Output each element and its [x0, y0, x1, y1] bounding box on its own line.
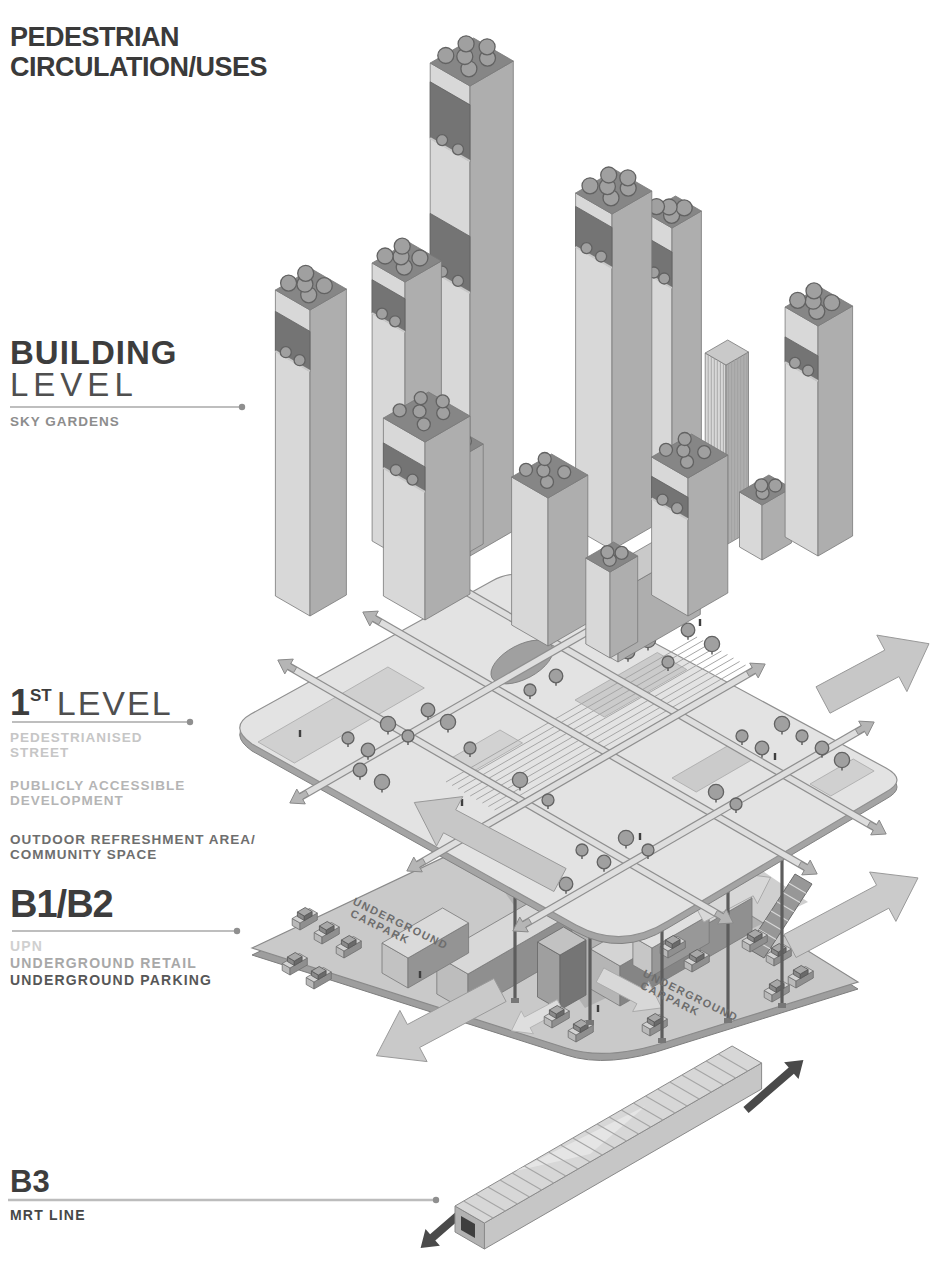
- caption-line: DEVELOPMENT: [10, 793, 185, 808]
- mrt-line-caption: MRT LINE: [10, 1207, 86, 1224]
- sky-gardens-caption: SKY GARDENS: [10, 414, 120, 429]
- pedestrian-circulation-figure: UNDERGROUND CARPARK UNDERGROUND CARPARK …: [0, 0, 936, 1281]
- page-title-line1: PEDESTRIAN: [10, 22, 267, 52]
- publicly-accessible-caption: PUBLICLY ACCESSIBLE DEVELOPMENT: [10, 778, 185, 808]
- b3-heading: B3: [10, 1166, 50, 1198]
- b1-b2-captions: UPN UNDERGROUND RETAIL UNDERGROUND PARKI…: [10, 938, 212, 989]
- axonometric-circulation-diagram: UNDERGROUND CARPARK UNDERGROUND CARPARK: [0, 0, 936, 1281]
- building-level-label: BUILDING LEVEL: [10, 336, 178, 401]
- page-title-line2: CIRCULATION/USES: [10, 52, 267, 82]
- caption-line: OUTDOOR REFRESHMENT AREA/: [10, 832, 256, 847]
- building-towers: [275, 36, 852, 662]
- pedestrianised-street-caption: PEDESTRIANISED STREET: [10, 730, 143, 760]
- underground-retail-caption: UNDERGROUND RETAIL: [10, 955, 212, 972]
- outdoor-refreshment-caption: OUTDOOR REFRESHMENT AREA/ COMMUNITY SPAC…: [10, 832, 256, 862]
- first-level-subheading: LEVEL: [57, 684, 173, 722]
- page-title: PEDESTRIAN CIRCULATION/USES: [10, 22, 267, 82]
- mrt-line-bar: [421, 1046, 804, 1249]
- caption-line: STREET: [10, 745, 143, 760]
- diagram-graphics: [8, 36, 929, 1249]
- first-level-ordinal: ST: [30, 686, 52, 705]
- caption-line: PEDESTRIANISED: [10, 730, 143, 745]
- building-level-subheading: LEVEL: [10, 369, 178, 401]
- caption-line: COMMUNITY SPACE: [10, 847, 256, 862]
- caption-line: PUBLICLY ACCESSIBLE: [10, 778, 185, 793]
- upn-caption: UPN: [10, 938, 212, 955]
- first-level-number: 1: [10, 682, 30, 723]
- building-level-heading: BUILDING: [10, 336, 178, 369]
- first-level-label: 1STLEVEL: [10, 682, 173, 724]
- underground-parking-caption: UNDERGROUND PARKING: [10, 972, 212, 989]
- b1-b2-heading: B1/B2: [10, 884, 113, 924]
